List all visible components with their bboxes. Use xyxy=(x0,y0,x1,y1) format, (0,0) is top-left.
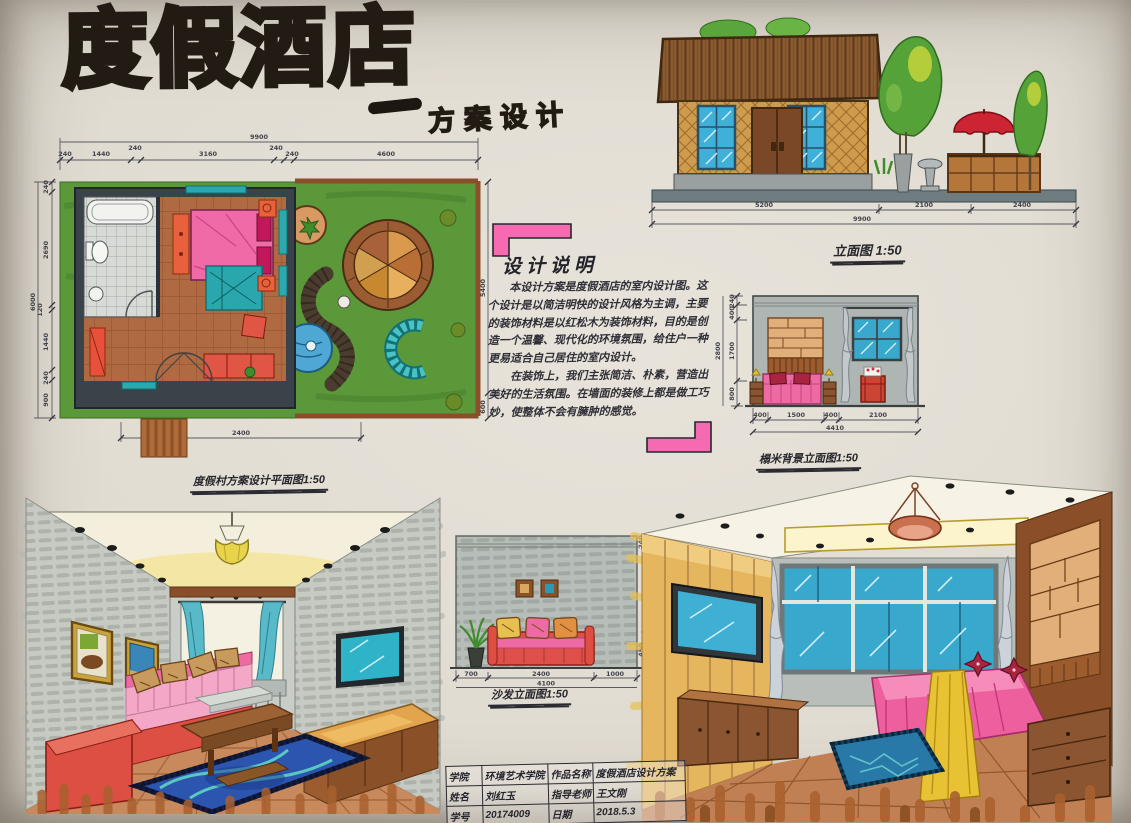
design-note-paragraph-1: 本设计方案是度假酒店的室内设计图。这个设计是以简洁明快的设计风格为主调，主要的装… xyxy=(487,278,710,369)
headboard-brick-inlay xyxy=(1030,520,1100,688)
svg-text:400: 400 xyxy=(728,306,736,320)
titleblock-tutor-label: 指导老师 xyxy=(548,783,593,804)
titleblock-school-label: 学院 xyxy=(446,766,482,787)
svg-text:700: 700 xyxy=(464,670,478,678)
page-title: 度假酒店 xyxy=(62,2,419,96)
wood-material-swatch xyxy=(140,418,188,458)
svg-text:1440: 1440 xyxy=(42,332,50,351)
svg-text:5200: 5200 xyxy=(755,201,774,209)
left-cabinet xyxy=(678,690,808,766)
right-chest xyxy=(1028,708,1110,806)
outdoor-counter xyxy=(948,154,1040,192)
svg-text:9900: 9900 xyxy=(250,133,269,141)
titleblock-id-value: 20174009 xyxy=(483,804,549,823)
svg-text:240: 240 xyxy=(285,150,299,158)
garden-birdbath xyxy=(918,159,942,191)
subtitle-dash-stroke xyxy=(368,97,423,115)
svg-text:240: 240 xyxy=(42,371,50,385)
svg-text:2100: 2100 xyxy=(869,411,888,419)
building-facade xyxy=(658,35,882,201)
facade-window-left xyxy=(698,106,735,169)
svg-text:2690: 2690 xyxy=(42,240,50,259)
svg-text:2400: 2400 xyxy=(1013,201,1032,209)
svg-text:4600: 4600 xyxy=(377,150,396,158)
title-block-table: 学院 环境艺术学院 作品名称 度假酒店设计方案 姓名 刘红玉 指导老师 王文刚 … xyxy=(445,760,686,823)
titleblock-date-label: 日期 xyxy=(549,803,594,823)
svg-text:400: 400 xyxy=(824,411,838,419)
bedroom-window xyxy=(782,566,996,672)
svg-text:240: 240 xyxy=(269,144,283,152)
headboard-brick-panel xyxy=(768,318,823,374)
titleblock-id-label: 学号 xyxy=(447,806,483,823)
building-elevation-caption: 立面图 1:50 xyxy=(830,239,905,263)
titleblock-date-value: 2018.5.3 xyxy=(594,801,686,823)
svg-text:800: 800 xyxy=(728,387,736,401)
titleblock-tutor-value: 王文刚 xyxy=(593,781,685,803)
presentation-board: 度假酒店 方案设计 9900 240 1440 240 3160 240 240… xyxy=(0,0,1131,823)
svg-text:2800: 2800 xyxy=(714,341,722,360)
svg-text:240: 240 xyxy=(58,150,72,158)
tv-right-wall xyxy=(336,626,404,688)
titleblock-name-value: 刘红玉 xyxy=(482,784,548,806)
svg-text:4410: 4410 xyxy=(826,424,845,432)
svg-text:240: 240 xyxy=(728,294,736,308)
svg-text:900: 900 xyxy=(42,393,50,407)
svg-text:1500: 1500 xyxy=(787,411,806,419)
design-note-heading: 设计说明 xyxy=(502,250,598,279)
flower-stand xyxy=(861,367,885,402)
floor-plan-drawing: 9900 240 1440 240 3160 240 240 4600 6000… xyxy=(26,126,504,460)
svg-text:1700: 1700 xyxy=(728,341,736,360)
svg-text:240: 240 xyxy=(128,144,142,152)
svg-text:240: 240 xyxy=(42,180,50,194)
svg-text:2100: 2100 xyxy=(915,201,934,209)
svg-text:1440: 1440 xyxy=(92,150,111,158)
titleblock-work-label: 作品名称 xyxy=(548,763,593,784)
floor-plan-caption: 度假村方案设计平面图1:50 xyxy=(190,471,328,493)
design-note-paragraph-2: 在装饰上，我们主张简洁、朴素，营造出美好的生活氛围。在墙面的装修上都是做工巧妙，… xyxy=(488,367,711,423)
titleblock-school-value: 环境艺术学院 xyxy=(482,764,548,786)
floor-plan-room xyxy=(75,186,295,408)
svg-text:9900: 9900 xyxy=(853,215,872,223)
building-elevation-dimensions: 5200 2100 2400 9900 xyxy=(649,201,1079,228)
design-note: 设计说明 本设计方案是度假酒店的室内设计图。这个设计是以简洁明快的设计风格为主调… xyxy=(484,221,716,465)
tv-left-wall xyxy=(672,584,762,662)
wall-painting-1 xyxy=(72,622,112,684)
living-room-perspective xyxy=(20,492,446,814)
red-parasol xyxy=(954,109,1014,154)
bedroom-perspective xyxy=(620,466,1128,822)
svg-text:3160: 3160 xyxy=(199,150,218,158)
svg-text:2400: 2400 xyxy=(532,670,551,678)
svg-text:2400: 2400 xyxy=(232,429,251,437)
svg-text:120: 120 xyxy=(36,303,44,317)
sofa-elevation-caption: 沙发立面图1:50 xyxy=(488,685,571,706)
titleblock-name-label: 姓名 xyxy=(446,786,482,807)
bed-elevation-drawing: 400 1500 400 2100 4410 240 400 1700 800 … xyxy=(693,280,993,450)
garden-shrub xyxy=(875,158,892,174)
svg-text:400: 400 xyxy=(753,411,767,419)
titleblock-work-value: 度假酒店设计方案 xyxy=(593,761,685,783)
bed-front xyxy=(763,372,821,404)
building-elevation-drawing: 5200 2100 2400 9900 xyxy=(636,14,1106,244)
